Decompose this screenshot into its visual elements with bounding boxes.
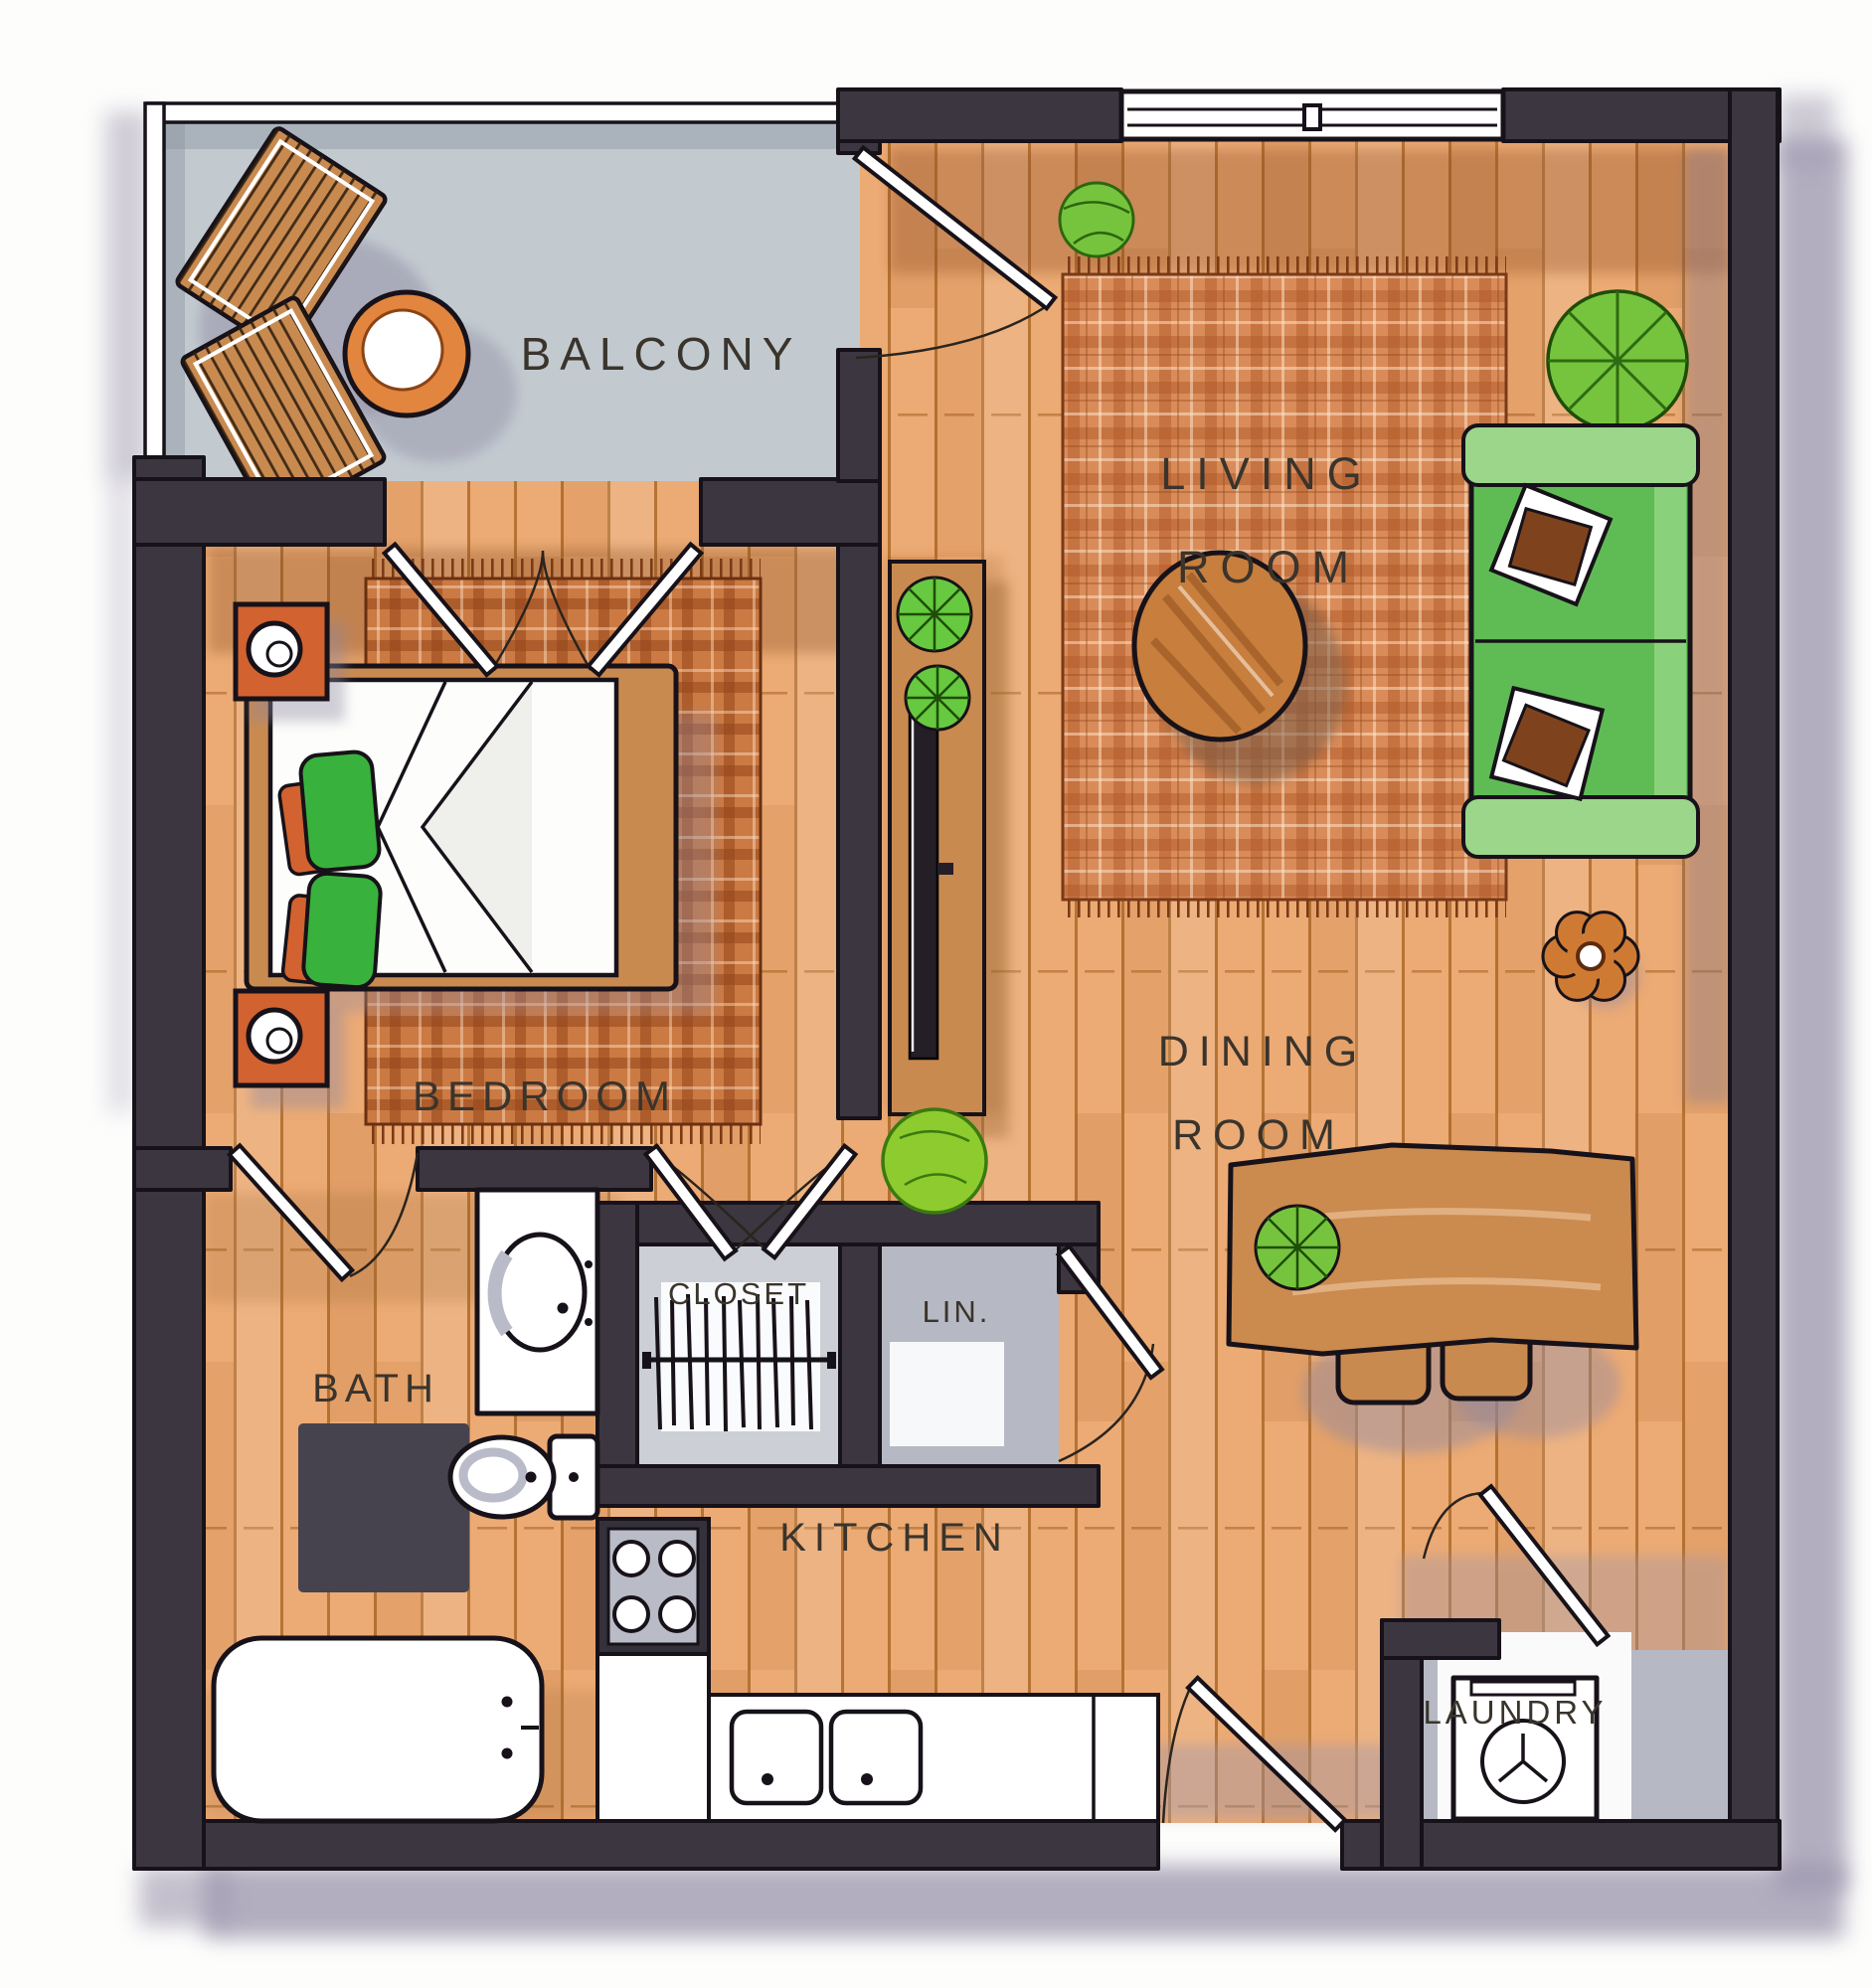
kitchen-sink-1 [732,1712,821,1803]
floor-plan-page: BALCONY LIVING ROOM BEDROOM DINING ROOM … [0,0,1872,1988]
room-label-laundry: LAUNDRY [1423,1694,1607,1731]
toilet-icon [450,1436,597,1518]
room-label-living-1: LIVING [1160,448,1373,499]
wall-bedroom-top-right [701,479,880,545]
plant-console-1 [898,578,971,651]
sofa-arm-bottom [1463,797,1698,857]
wall-closet-top [597,1203,1099,1244]
room-label-dining-2: ROOM [1172,1111,1345,1159]
balcony-wall-top [147,103,860,122]
kitchen-counter-left [597,1654,709,1821]
stove-icon [597,1519,709,1654]
wall-closet-linen-divider [840,1244,880,1466]
wall-bedroom-top-left [134,479,385,545]
rug-fringe-bottom [1063,900,1506,917]
window-mullion [1304,105,1320,129]
bath-mat [298,1423,469,1592]
room-label-dining-1: DINING [1158,1028,1368,1076]
balcony-table [345,292,468,415]
shadow-left-balcony [105,111,149,481]
plant-dining-table [1256,1206,1339,1289]
kitchen-sink-2 [831,1712,921,1803]
plant-hall [883,1109,986,1213]
kitchen-counter-bottom [709,1695,1158,1821]
plant-balcony-door [1060,183,1133,256]
living-room-window [1121,91,1503,139]
rug-fringe-top [1063,256,1506,274]
bed-pillow-green-1 [299,750,381,872]
wall-top-left-segment [838,89,1121,141]
plant-sofa-corner [1548,291,1687,430]
room-label-linen: LIN. [923,1294,991,1329]
sofa-pillow-2 [1491,688,1603,799]
shadow-right [1776,139,1847,1891]
bed-pillow-green-2 [302,873,382,989]
room-label-bath: BATH [312,1367,439,1410]
sink-basin-icon [495,1235,585,1350]
bathtub [214,1638,542,1821]
wall-bath-top-b [418,1148,651,1190]
room-label-balcony: BALCONY [521,328,802,380]
sofa [1463,425,1698,857]
room-label-kitchen: KITCHEN [779,1516,1010,1560]
wall-bottom-left [134,1821,1158,1869]
room-label-living-2: ROOM [1177,542,1360,592]
room-label-bedroom: BEDROOM [413,1073,677,1119]
balcony-wall-left [145,103,164,481]
floor-plan-drawing: BALCONY LIVING ROOM BEDROOM DINING ROOM … [0,0,1872,1988]
nightstand-bottom [236,991,345,1108]
wall-closet-left [597,1203,637,1506]
wall-laundry-top-stub [1382,1620,1499,1658]
bath-sink-counter [477,1190,597,1413]
wall-bath-top-a [134,1148,231,1190]
room-label-closet: CLOSET [668,1276,809,1311]
balcony [145,103,860,523]
nightstand-top [236,604,345,722]
shadow-bottom [204,1865,1844,1938]
plant-console-2 [906,666,969,730]
wall-tv-partition [838,545,880,1118]
sofa-arm-top [1463,425,1698,485]
wall-balcony-living [838,350,880,481]
flower-table-petals [1543,912,1638,1001]
wall-right [1730,89,1778,1869]
wall-closet-bottom [597,1466,1099,1506]
